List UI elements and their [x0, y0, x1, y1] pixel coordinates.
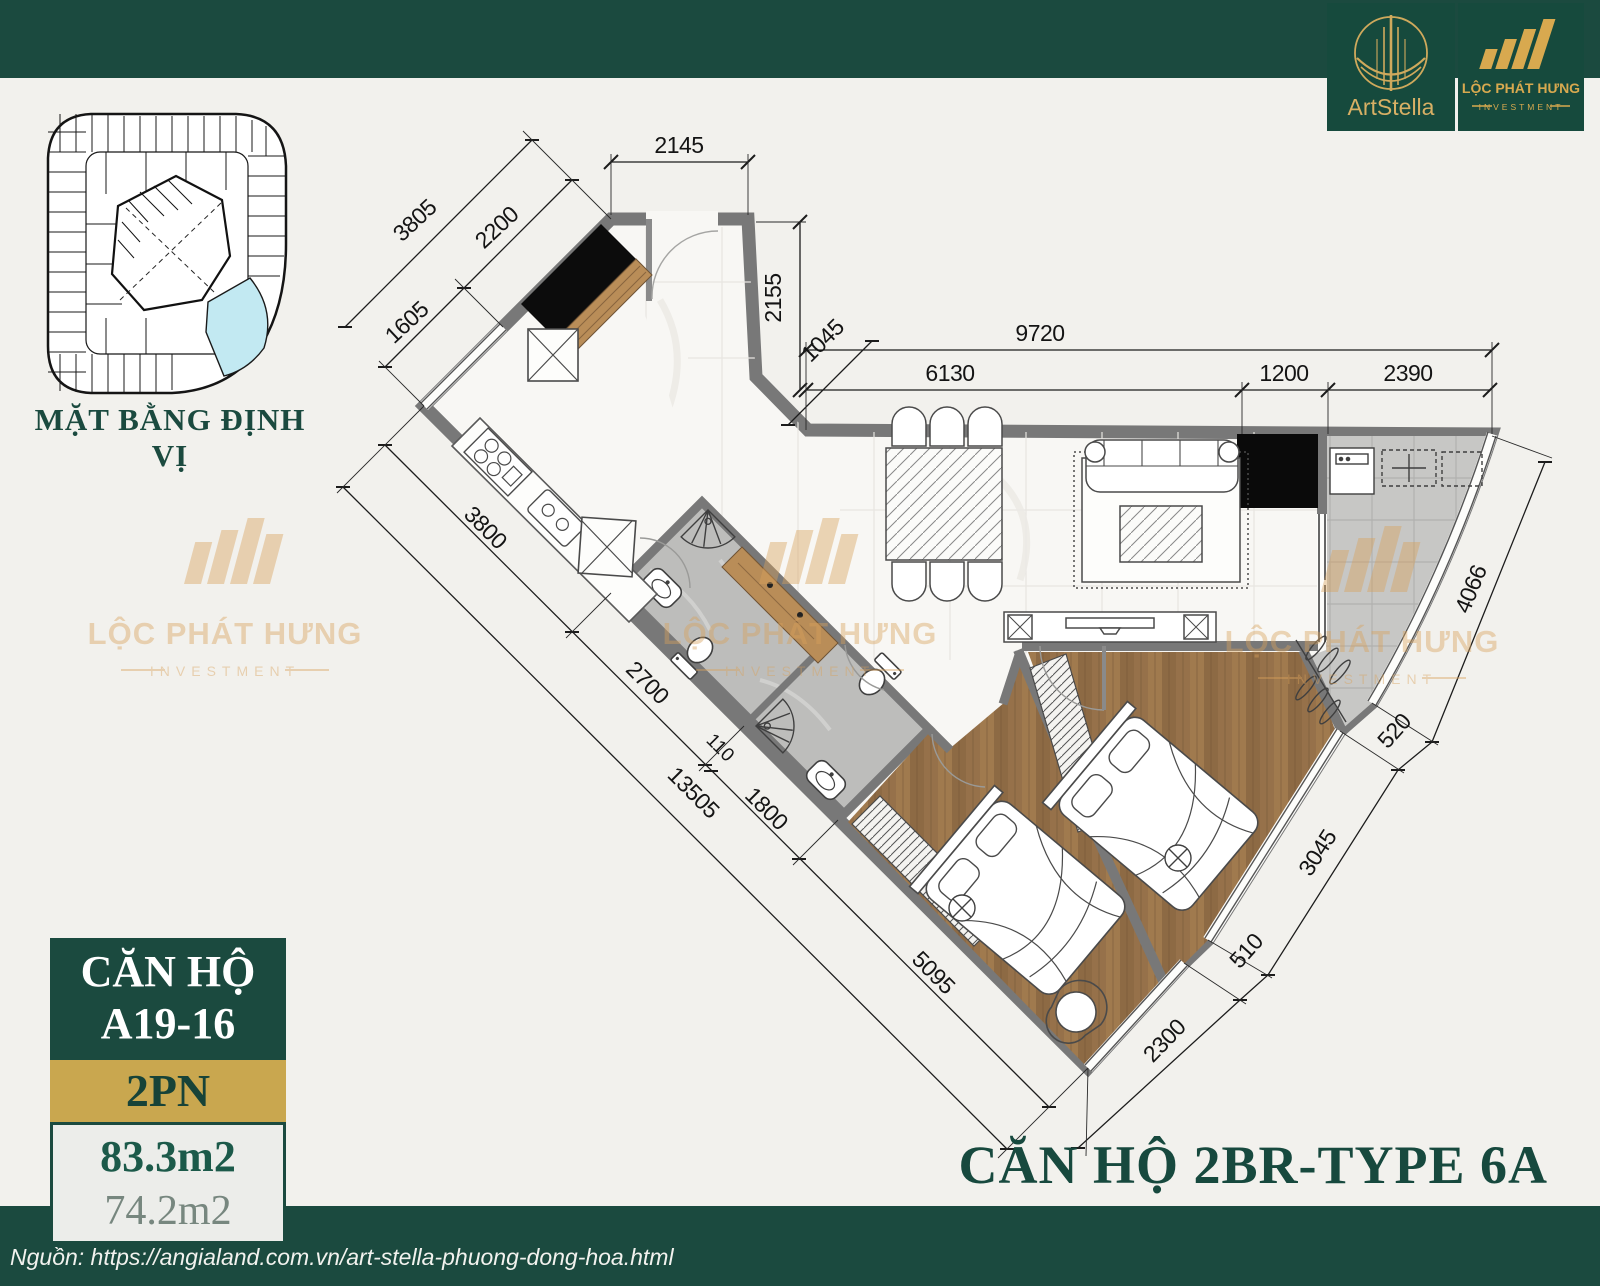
- service-shaft: [1237, 434, 1318, 508]
- dim-label: 2155: [760, 273, 786, 322]
- floorplan-page: Nguồn: https://angialand.com.vn/art-stel…: [0, 0, 1600, 1286]
- dim-label: 1200: [1259, 360, 1308, 386]
- unit-area-net: 74.2m2: [53, 1185, 283, 1241]
- dim-label: 3045: [1293, 825, 1342, 880]
- dim-label: 2200: [470, 201, 524, 254]
- unit-info-card: CĂN HỘ A19-16 2PN 83.3m2 74.2m2: [50, 938, 286, 1244]
- unit-bedrooms-badge: 2PN: [50, 1060, 286, 1122]
- unit-id-block: CĂN HỘ A19-16: [50, 938, 286, 1060]
- dining-set: [886, 407, 1002, 601]
- unit-code: A19-16: [50, 998, 286, 1050]
- dim-label: 1800: [740, 782, 793, 835]
- unit-areas-block: 83.3m2 74.2m2: [50, 1122, 286, 1244]
- dim-label: 6130: [925, 360, 974, 386]
- dim-label: 2300: [1138, 1014, 1191, 1067]
- dim-label: 5095: [907, 946, 960, 999]
- dim-label: 9720: [1015, 320, 1064, 346]
- dim-label: 2145: [654, 132, 703, 158]
- dim-label: 2700: [621, 656, 674, 709]
- dim-label: 1045: [796, 314, 849, 367]
- dim-label: 2390: [1383, 360, 1432, 386]
- page-title: CĂN HỘ 2BR-TYPE 6A: [958, 1134, 1548, 1196]
- unit-area-gross: 83.3m2: [53, 1125, 283, 1185]
- unit-label: CĂN HỘ: [50, 946, 286, 998]
- dim-label: 1605: [380, 296, 434, 349]
- dim-label: 520: [1372, 708, 1416, 753]
- dim-label: 110: [702, 730, 738, 766]
- dim-label: 510: [1224, 928, 1268, 973]
